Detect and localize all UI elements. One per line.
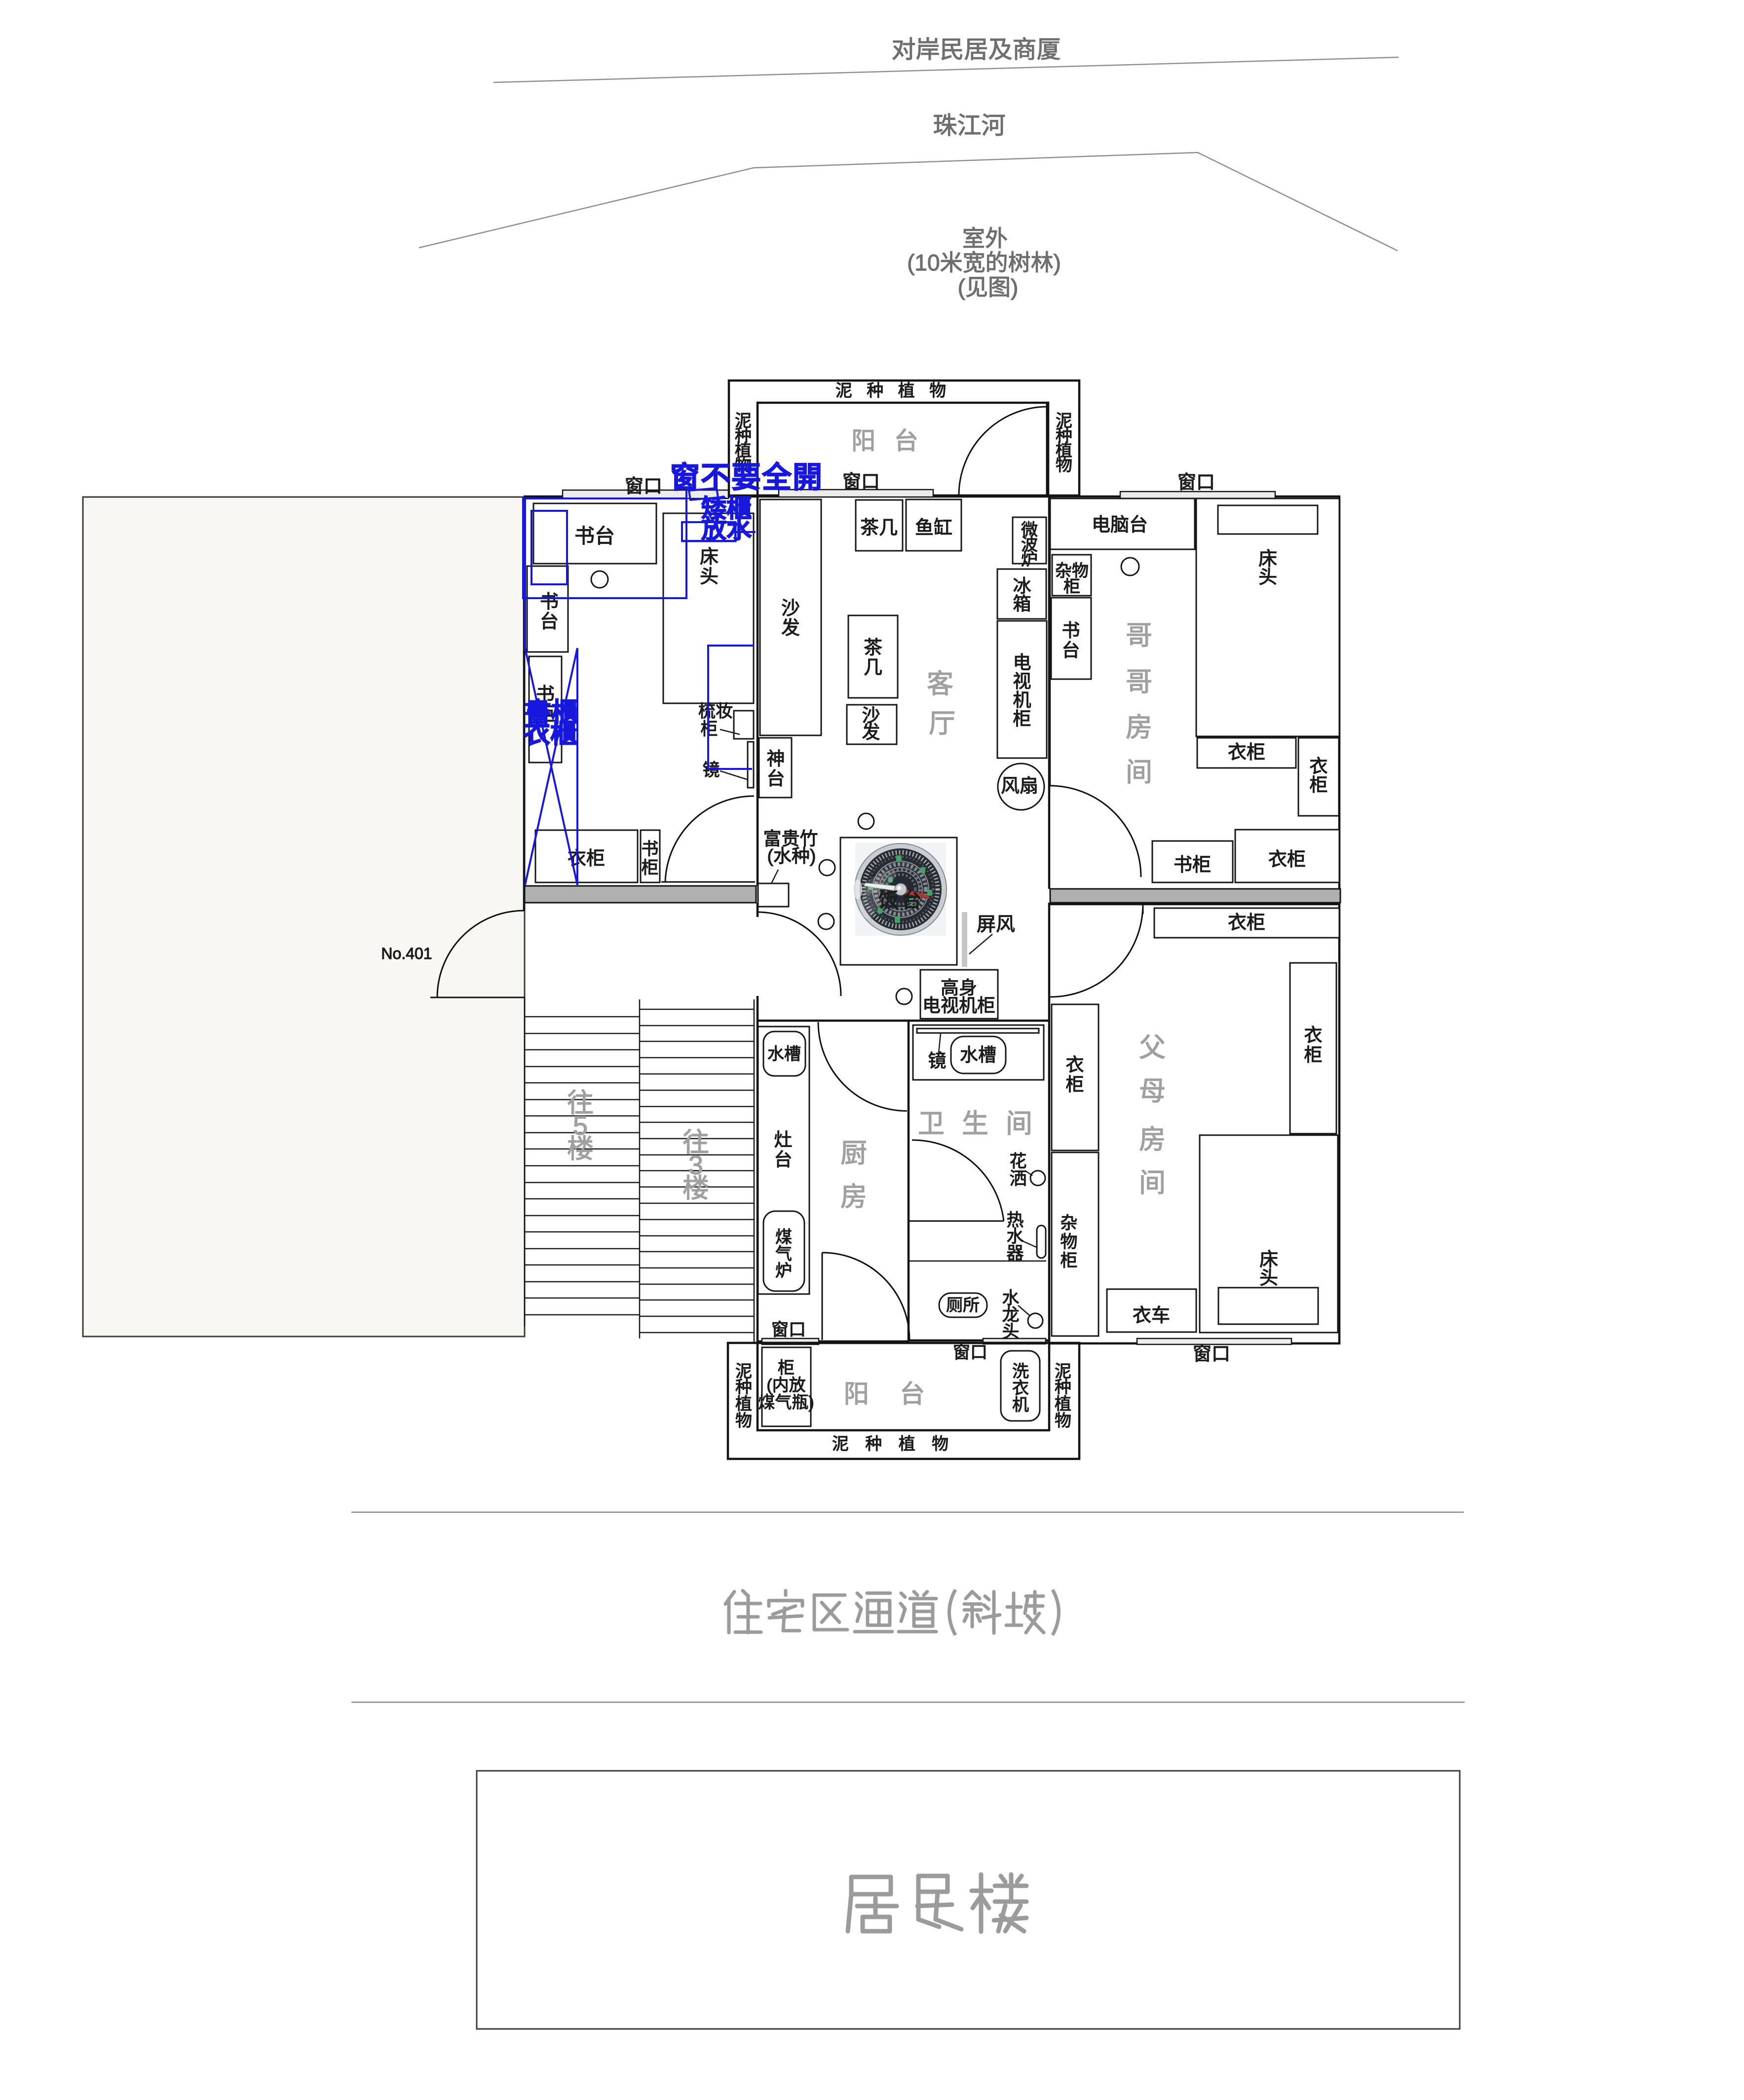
svg-text:柜: 柜 [1063, 577, 1080, 596]
svg-text:几: 几 [864, 657, 882, 678]
svg-text:No.401: No.401 [381, 945, 432, 962]
svg-text:杂: 杂 [1060, 1214, 1077, 1233]
svg-text:台: 台 [1062, 640, 1080, 660]
svg-text:窗口: 窗口 [1193, 1344, 1230, 1365]
svg-text:(内放: (内放 [766, 1376, 805, 1395]
svg-text:哥: 哥 [1126, 621, 1152, 650]
svg-text:头: 头 [1259, 1268, 1278, 1289]
svg-text:茶: 茶 [864, 638, 882, 658]
svg-text:房: 房 [1139, 1125, 1166, 1154]
svg-text:机: 机 [1013, 690, 1031, 710]
svg-text:茶几: 茶几 [860, 518, 898, 538]
svg-text:柜: 柜 [1060, 1251, 1077, 1270]
svg-text:炉: 炉 [1021, 550, 1038, 569]
svg-text:屏风: 屏风 [977, 914, 1015, 935]
svg-text:厕所: 厕所 [946, 1296, 980, 1315]
svg-text:放水: 放水 [701, 515, 752, 543]
svg-text:泥 种 植 物: 泥 种 植 物 [835, 382, 951, 400]
svg-text:床: 床 [1258, 549, 1277, 570]
svg-text:植: 植 [735, 1395, 752, 1413]
svg-text:种: 种 [1055, 1378, 1071, 1397]
svg-text:窗口: 窗口 [1177, 472, 1215, 493]
svg-text:对岸民居及商厦: 对岸民居及商厦 [891, 37, 1061, 63]
svg-text:窗口: 窗口 [625, 476, 662, 497]
svg-text:洗: 洗 [1012, 1362, 1029, 1381]
svg-text:花: 花 [1009, 1152, 1026, 1171]
svg-text:水槽: 水槽 [767, 1045, 801, 1064]
svg-text:机: 机 [1012, 1396, 1029, 1414]
svg-text:衣车: 衣车 [1133, 1305, 1170, 1326]
svg-text:种: 种 [735, 1378, 752, 1397]
svg-text:房: 房 [840, 1182, 867, 1212]
svg-text:衣櫃: 衣櫃 [524, 719, 577, 749]
svg-text:客: 客 [927, 669, 953, 699]
svg-text:窗不要全開: 窗不要全開 [670, 461, 823, 494]
svg-text:器: 器 [1006, 1244, 1024, 1263]
svg-text:窗口: 窗口 [771, 1320, 806, 1339]
svg-text:气: 气 [775, 1245, 792, 1263]
svg-text:高身: 高身 [941, 978, 977, 998]
svg-text:发: 发 [781, 618, 800, 639]
svg-text:柜: 柜 [641, 858, 658, 878]
svg-text:衣柜: 衣柜 [1228, 913, 1265, 933]
svg-text:阳 台: 阳 台 [851, 428, 924, 455]
svg-text:床: 床 [700, 547, 719, 568]
svg-text:楼: 楼 [567, 1134, 594, 1164]
svg-text:哥: 哥 [1126, 667, 1152, 697]
svg-text:柜: 柜 [1013, 709, 1031, 729]
svg-text:物: 物 [1055, 1412, 1071, 1430]
svg-text:楼: 楼 [682, 1174, 709, 1203]
svg-text:物: 物 [1060, 1232, 1077, 1252]
svg-text:台: 台 [767, 768, 785, 789]
svg-text:物: 物 [735, 1412, 752, 1430]
svg-text:书柜: 书柜 [1174, 855, 1211, 876]
svg-text:书: 书 [641, 840, 658, 859]
svg-text:灶: 灶 [774, 1130, 793, 1150]
svg-text:书台: 书台 [574, 525, 615, 547]
svg-text:间: 间 [1139, 1168, 1166, 1198]
svg-text:头: 头 [700, 567, 719, 587]
svg-text:炉: 炉 [775, 1261, 792, 1280]
svg-text:(10米宽的树林): (10米宽的树林) [907, 250, 1061, 275]
svg-text:柜: 柜 [1304, 1045, 1323, 1065]
svg-text:衣: 衣 [1012, 1379, 1029, 1398]
svg-text:电视机柜: 电视机柜 [922, 995, 995, 1016]
svg-text:柜: 柜 [1066, 1074, 1084, 1095]
svg-text:镜: 镜 [702, 761, 720, 780]
svg-text:泥 种 植 物: 泥 种 植 物 [832, 1435, 954, 1453]
svg-text:(见图): (见图) [958, 274, 1019, 300]
svg-text:箱: 箱 [1013, 594, 1031, 614]
svg-text:冰: 冰 [1013, 576, 1031, 596]
svg-text:室外: 室外 [962, 226, 1008, 251]
svg-text:窗口: 窗口 [953, 1343, 987, 1362]
svg-text:母: 母 [1139, 1076, 1166, 1106]
svg-text:柜: 柜 [778, 1359, 795, 1377]
svg-text:间: 间 [1126, 758, 1152, 787]
svg-text:煤气瓶): 煤气瓶) [758, 1393, 814, 1412]
svg-text:物: 物 [1056, 456, 1072, 475]
svg-text:卫 生 间: 卫 生 间 [918, 1109, 1037, 1139]
svg-text:父: 父 [1139, 1033, 1166, 1063]
svg-text:柜: 柜 [1310, 775, 1328, 795]
svg-text:厅: 厅 [929, 709, 955, 738]
svg-text:阳 台: 阳 台 [844, 1380, 937, 1408]
svg-text:发: 发 [862, 722, 880, 742]
svg-text:房: 房 [1126, 713, 1152, 742]
svg-text:台: 台 [540, 611, 559, 632]
svg-text:珠江河: 珠江河 [933, 113, 1005, 139]
svg-text:(水种): (水种) [767, 846, 816, 866]
svg-text:鱼缸: 鱼缸 [915, 518, 952, 538]
svg-text:沙: 沙 [781, 598, 800, 619]
svg-text:窗口: 窗口 [842, 472, 880, 493]
svg-text:台: 台 [774, 1149, 793, 1170]
svg-text:衣柜: 衣柜 [1228, 742, 1265, 763]
svg-text:植: 植 [1055, 1395, 1071, 1413]
svg-text:书: 书 [1062, 620, 1080, 641]
svg-text:衣: 衣 [1066, 1055, 1084, 1075]
svg-text:厨: 厨 [840, 1139, 867, 1168]
svg-text:床: 床 [1259, 1250, 1278, 1270]
svg-text:书: 书 [540, 592, 559, 612]
svg-text:电: 电 [1013, 652, 1031, 673]
svg-text:神: 神 [767, 749, 785, 769]
svg-text:饭台: 饭台 [878, 889, 925, 912]
svg-text:水槽: 水槽 [960, 1045, 996, 1065]
svg-text:衣: 衣 [1304, 1025, 1323, 1045]
svg-text:衣: 衣 [1310, 756, 1328, 776]
svg-text:洒: 洒 [1009, 1169, 1026, 1188]
svg-text:衣柜: 衣柜 [1268, 849, 1306, 870]
svg-text:视: 视 [1013, 671, 1031, 691]
svg-text:梳妆: 梳妆 [698, 702, 733, 721]
svg-text:头: 头 [1258, 567, 1277, 588]
svg-text:风扇: 风扇 [1001, 776, 1038, 797]
svg-text:煤: 煤 [775, 1228, 792, 1247]
svg-text:镜: 镜 [928, 1051, 947, 1071]
svg-text:电脑台: 电脑台 [1092, 515, 1148, 535]
